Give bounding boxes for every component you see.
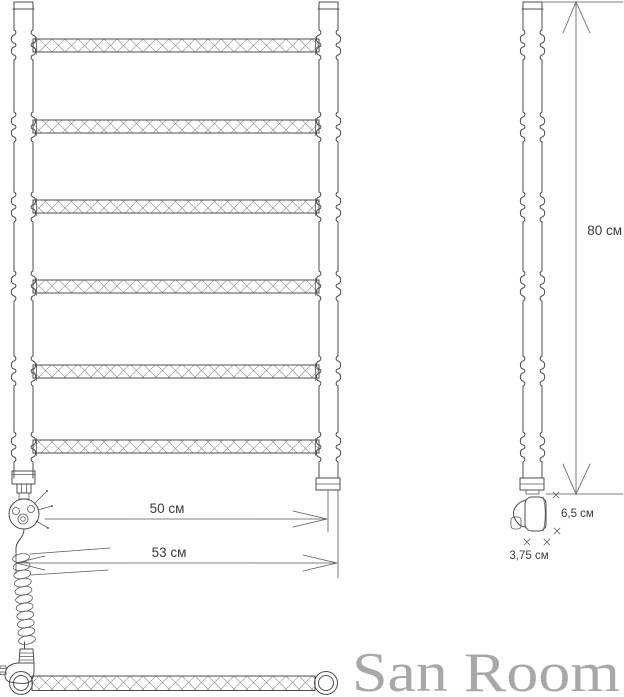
left-post-collar [12,471,35,484]
dimension-bracket-width: 3,75 см [509,539,550,562]
bracket-width-label: 3,75 см [509,550,548,562]
outer-width-label: 53 см [152,545,187,560]
side-view [511,2,546,531]
side-post [520,2,544,478]
rung [33,38,319,456]
rung-detail-bar [10,672,338,695]
brand-watermark: San Room [352,642,620,697]
wall-bracket [511,497,546,531]
height-label: 80 см [587,223,622,238]
power-cable [16,529,24,556]
wall-offset-label: 6,5 см [561,508,594,520]
front-left-post [11,2,35,478]
front-view [11,2,340,490]
technical-drawing: 80 см 50 см 53 см 6,5 см 3,75 см San Roo… [0,0,624,697]
callout-leaders [35,490,53,529]
dimension-height: 80 см [543,2,623,494]
right-post-collar [316,478,340,490]
side-post-collar [520,478,544,494]
inner-width-label: 50 см [150,501,185,516]
heating-element [9,484,53,556]
dimension-wall-offset: 6,5 см [553,492,594,534]
dimension-inner-width: 50 см [45,491,328,532]
front-right-post [316,2,340,478]
